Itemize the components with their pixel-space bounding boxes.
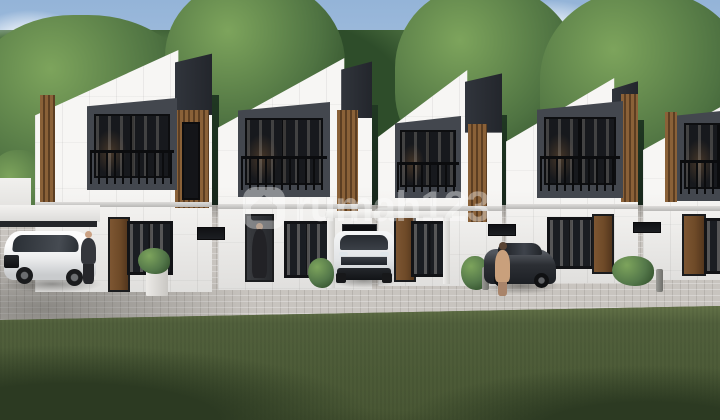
- woman-in-tan-dress: [493, 242, 513, 296]
- side-window: [182, 122, 200, 200]
- balcony: [677, 107, 720, 201]
- watermark-text: rumah123: [294, 186, 489, 229]
- floor-slab-line: [643, 206, 720, 211]
- balcony-railing: [90, 150, 175, 183]
- person-legs: [83, 264, 94, 284]
- person-torso: [495, 250, 510, 282]
- wood-slat-panel: [665, 112, 677, 202]
- car-wheel: [16, 267, 33, 284]
- car-wheel: [336, 273, 346, 283]
- person-torso: [252, 229, 267, 278]
- white-suv-car: [334, 231, 394, 283]
- man-in-suit: [80, 231, 97, 284]
- balcony: [537, 101, 623, 198]
- roof-peak-block: [175, 52, 212, 115]
- house-badge-icon: [243, 187, 285, 229]
- townhouse-unit-5: [643, 86, 720, 280]
- wood-slat-panel: [40, 95, 55, 207]
- balcony: [87, 98, 177, 190]
- car-headlight: [339, 252, 348, 256]
- car-windshield: [340, 235, 388, 250]
- person-head: [85, 231, 92, 238]
- car-windows: [12, 235, 80, 252]
- car-headlight: [380, 252, 389, 256]
- wood-slat-panel: [621, 94, 638, 202]
- carport-roof: [0, 205, 100, 222]
- render-scene: rumah123: [0, 0, 720, 420]
- car-grille: [4, 255, 19, 268]
- carport-fascia: [0, 221, 97, 227]
- slit-window: [197, 227, 225, 240]
- car-wheel: [382, 273, 392, 283]
- ground-floor-window: [704, 218, 720, 274]
- entry-door: [682, 214, 706, 276]
- floor-slab-line: [506, 204, 638, 209]
- slit-window: [488, 224, 516, 236]
- car-grille: [341, 256, 387, 265]
- car-wheel: [534, 273, 549, 288]
- person-head: [499, 242, 507, 250]
- rumah123-watermark: rumah123: [243, 186, 489, 229]
- shrub: [138, 248, 170, 274]
- shrub: [612, 256, 654, 286]
- shrub: [308, 258, 334, 288]
- person-in-dark-robe: [251, 223, 269, 278]
- person-torso: [81, 238, 96, 264]
- bollard: [656, 269, 663, 292]
- slit-window: [633, 222, 661, 233]
- balcony-railing: [680, 160, 720, 194]
- entry-door: [592, 214, 614, 274]
- balcony-railing: [540, 156, 621, 191]
- person-legs: [498, 282, 507, 296]
